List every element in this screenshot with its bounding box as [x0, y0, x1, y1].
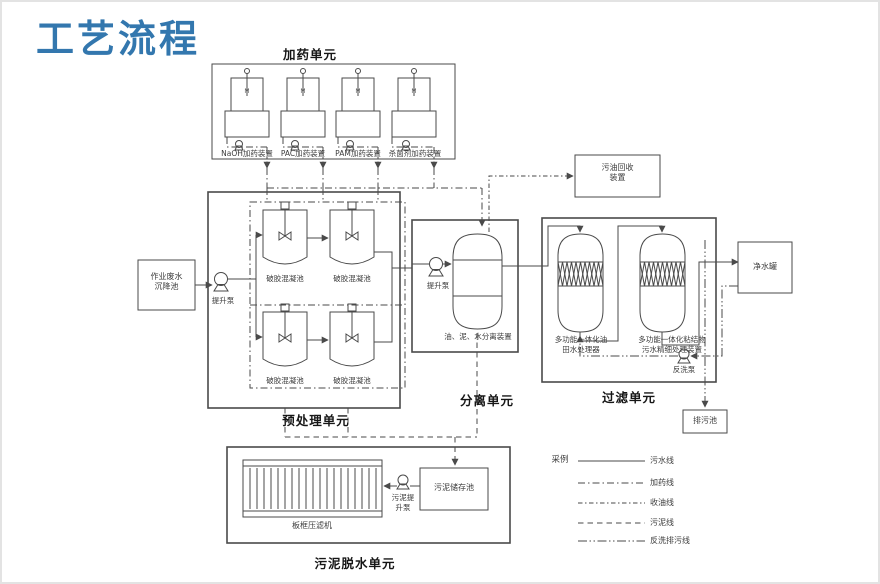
- process-diagram: [0, 0, 880, 584]
- filter-vessel1-label: 多功能一体化油 田水处理器: [542, 335, 620, 355]
- clean-water-tank-label: 净水罐: [738, 262, 792, 272]
- filter-vessel1-line1: 多功能一体化油: [542, 335, 620, 345]
- press-plates: [250, 468, 376, 509]
- dewatering-unit-title: 污泥脱水单元: [295, 553, 415, 572]
- drain-pool-label: 排污池: [683, 416, 727, 426]
- source-tank-label: 作业废水 沉降池: [138, 272, 195, 293]
- sludge-storage-label: 污泥储存池: [420, 483, 488, 493]
- filtration-unit-box: [542, 218, 716, 382]
- motor-icon: M: [352, 88, 364, 96]
- slide: 工艺流程: [0, 0, 880, 584]
- oil-collection-line: [489, 176, 573, 232]
- legend-title: 采例: [545, 455, 575, 466]
- dosing-lines: [227, 137, 482, 388]
- motor-icon: M: [408, 88, 420, 96]
- oil-recovery-line2: 装置: [575, 173, 660, 183]
- motor-icon: M: [297, 88, 309, 96]
- filter-vessel1-line2: 田水处理器: [542, 345, 620, 355]
- dosing-device-label: 杀菌剂加药装置: [384, 149, 446, 159]
- oil-recovery-line1: 污油回收: [575, 163, 660, 173]
- legend-item-label: 污水线: [650, 456, 720, 466]
- dosing-device-label: NaOH加药装置: [218, 149, 276, 159]
- pretreatment-unit-title: 预处理单元: [266, 410, 366, 429]
- mixing-tank-label: 破胶混凝池: [255, 376, 315, 386]
- lift-pump-label: 提升泵: [203, 296, 243, 306]
- dosing-unit-box: [212, 64, 455, 159]
- mixing-tank-label: 破胶混凝池: [255, 274, 315, 284]
- legend-line-samples: [578, 461, 645, 541]
- legend-item-label: 加药线: [650, 478, 720, 488]
- legend-item-label: 收油线: [650, 498, 720, 508]
- source-tank-line1: 作业废水: [138, 272, 195, 282]
- dosing-device-label: PAC加药装置: [275, 149, 331, 159]
- dewatering-unit-box: [227, 447, 510, 543]
- filter-vessel2-line2: 污水精细处理装置: [624, 345, 720, 355]
- legend-item-label: 污泥线: [650, 518, 720, 528]
- sludge-pump-line1: 污泥提: [386, 493, 420, 503]
- filter-vessel2-line1: 多功能一体化粘结物: [624, 335, 720, 345]
- filter-vessel2-label: 多功能一体化粘结物 污水精细处理装置: [624, 335, 720, 355]
- backwash-pump-label: 反洗泵: [664, 365, 704, 375]
- sludge-pump-line2: 升泵: [386, 503, 420, 513]
- separation-unit-title: 分离单元: [437, 390, 537, 409]
- motor-icon: M: [241, 88, 253, 96]
- oil-recovery-label: 污油回收 装置: [575, 163, 660, 184]
- mixing-tank-label: 破胶混凝池: [322, 376, 382, 386]
- filtration-unit-title: 过滤单元: [579, 387, 679, 406]
- separator-vessel-label: 油、泥、水分离装置: [430, 332, 526, 342]
- separation-pump-label: 提升泵: [418, 281, 458, 291]
- legend-item-label: 反洗排污线: [650, 536, 730, 546]
- dosing-unit-title: 加药单元: [260, 44, 360, 63]
- mixing-tank-label: 破胶混凝池: [322, 274, 382, 284]
- sludge-pump-label: 污泥提 升泵: [386, 493, 420, 513]
- source-tank-line2: 沉降池: [138, 282, 195, 292]
- dosing-device-label: PAM加药装置: [330, 149, 386, 159]
- filter-press-label: 板框压滤机: [277, 521, 347, 531]
